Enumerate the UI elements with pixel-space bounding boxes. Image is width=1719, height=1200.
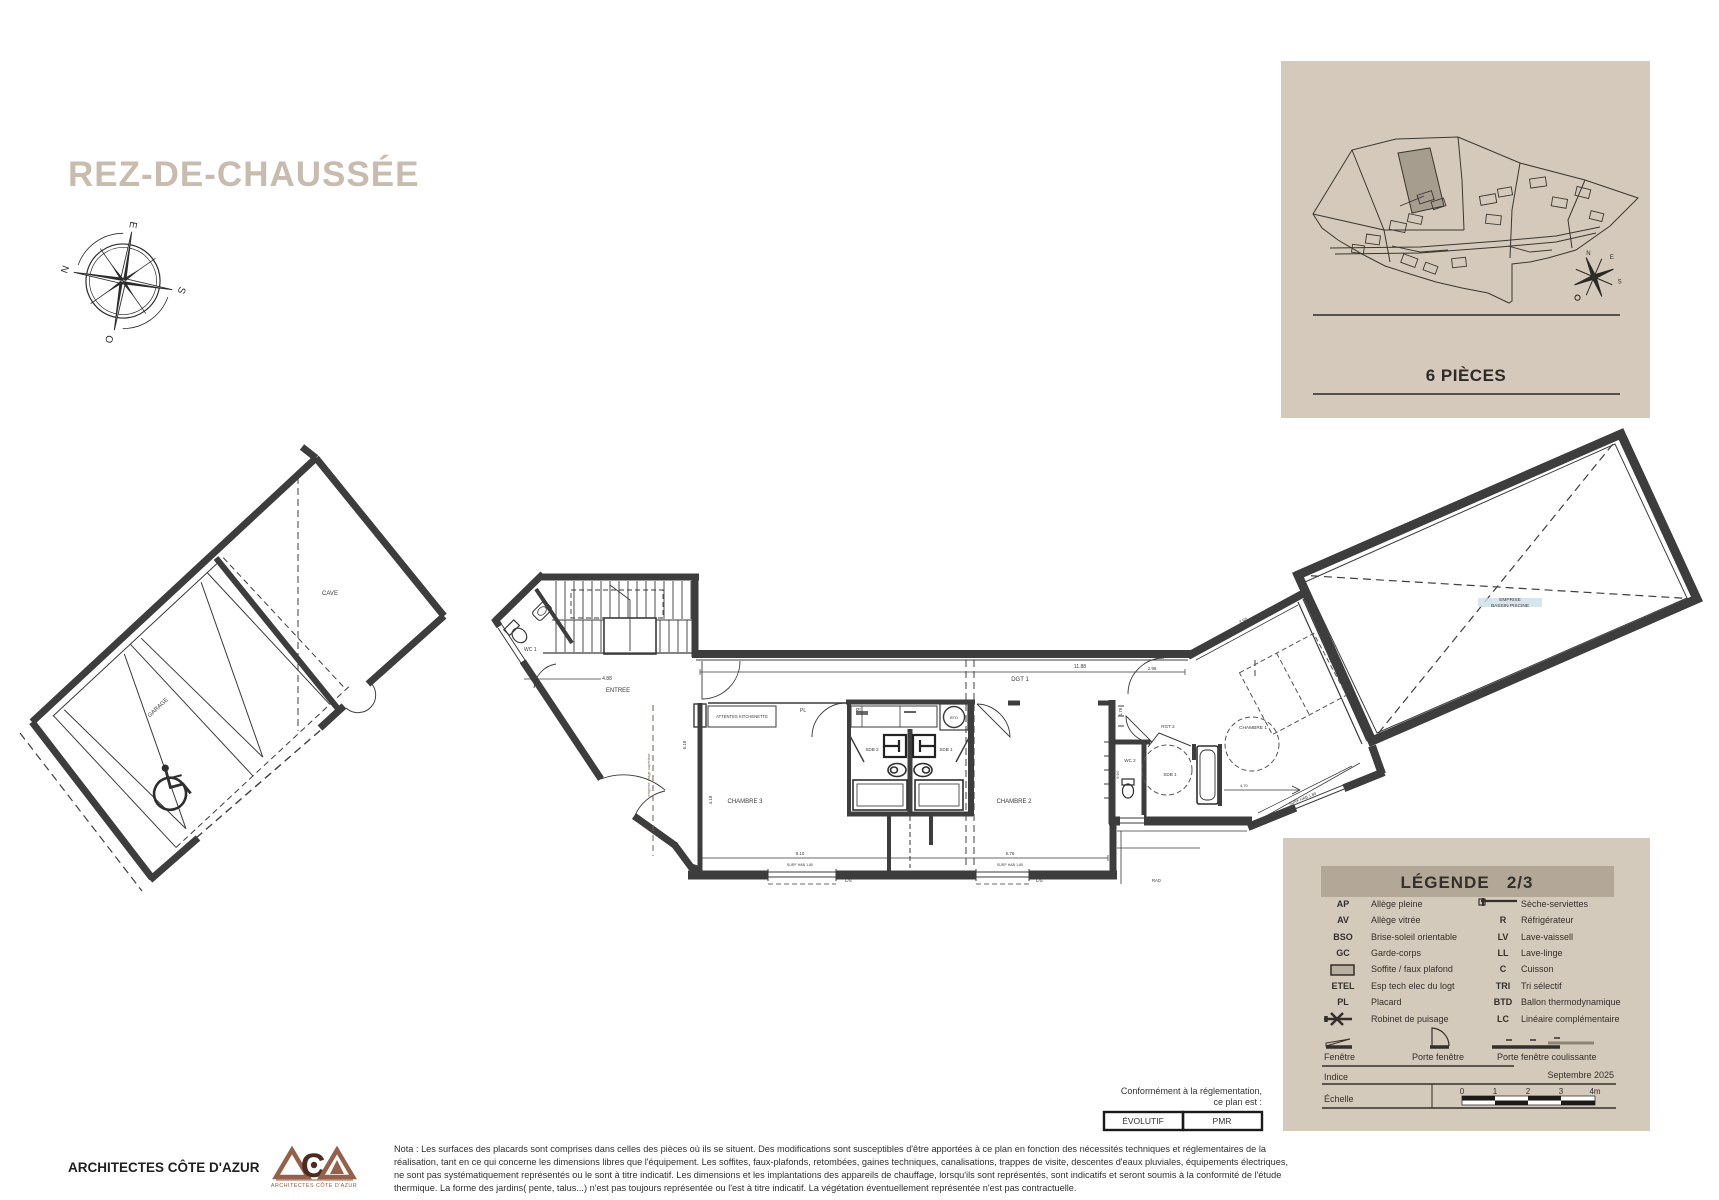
svg-text:CHAMBRE 3: CHAMBRE 3 (727, 799, 763, 805)
svg-text:LV: LV (1498, 932, 1509, 942)
svg-text:ÉVOLUTIF: ÉVOLUTIF (1122, 1116, 1164, 1126)
svg-text:4m: 4m (1589, 1087, 1600, 1096)
svg-text:PL: PL (800, 708, 806, 714)
svg-text:ARCHITECTES CÔTE D'AZUR: ARCHITECTES CÔTE D'AZUR (271, 1182, 357, 1189)
svg-text:réalisation, tant en ce qui co: réalisation, tant en ce qui concerne les… (394, 1157, 1288, 1167)
svg-text:ENTREE: ENTREE (606, 688, 630, 694)
svg-text:LL: LL (1498, 948, 1509, 958)
svg-text:ETEL: ETEL (1331, 981, 1355, 991)
svg-text:6.76: 6.76 (1006, 851, 1015, 856)
svg-text:PL: PL (856, 708, 862, 714)
svg-text:BTD: BTD (1494, 997, 1513, 1007)
svg-text:ne sont pas systématiquement r: ne sont pas systématiquement représentés… (394, 1170, 1281, 1180)
svg-text:GC: GC (1336, 948, 1350, 958)
svg-text:S: S (1618, 280, 1622, 286)
svg-text:REZ-DE-CHAUSSÉE: REZ-DE-CHAUSSÉE (68, 154, 419, 194)
svg-text:L/S: L/S (1036, 878, 1043, 883)
svg-text:Placard: Placard (1371, 997, 1402, 1007)
svg-text:AP: AP (1337, 899, 1350, 909)
svg-text:0.94: 0.94 (1116, 771, 1120, 778)
svg-text:Septembre 2025: Septembre 2025 (1547, 1070, 1614, 1080)
svg-text:0: 0 (1460, 1087, 1465, 1096)
svg-text:Brise-soleil orientable: Brise-soleil orientable (1371, 932, 1457, 942)
svg-text:Conformément à la réglementati: Conformément à la réglementation, (1121, 1086, 1262, 1096)
svg-text:emprise étage supérieur: emprise étage supérieur (646, 753, 651, 797)
svg-text:3: 3 (1559, 1087, 1564, 1096)
svg-text:R: R (1500, 915, 1507, 925)
svg-text:6.18: 6.18 (682, 740, 687, 749)
svg-text:L/S: L/S (845, 878, 852, 883)
svg-text:BSO: BSO (1333, 932, 1353, 942)
svg-text:4.18: 4.18 (708, 795, 713, 804)
svg-text:6 PIÈCES: 6 PIÈCES (1426, 366, 1507, 385)
svg-text:SDB 1: SDB 1 (939, 747, 953, 752)
svg-text:ce plan est :: ce plan est : (1213, 1097, 1262, 1107)
svg-text:Allège vitrée: Allège vitrée (1371, 915, 1421, 925)
svg-text:2: 2 (1526, 1087, 1531, 1096)
svg-text:WC 2: WC 2 (1124, 758, 1136, 763)
svg-text:E: E (1610, 255, 1614, 261)
svg-text:2.96: 2.96 (1148, 666, 1157, 671)
svg-text:ARCHITECTES CÔTE D'AZUR: ARCHITECTES CÔTE D'AZUR (68, 1160, 260, 1175)
svg-text:AV: AV (1337, 915, 1349, 925)
svg-text:BTD: BTD (950, 715, 958, 720)
svg-text:1: 1 (1493, 1087, 1498, 1096)
svg-text:Ballon thermodynamique: Ballon thermodynamique (1521, 997, 1621, 1007)
svg-text:4.76: 4.76 (1118, 707, 1123, 716)
svg-text:RAD: RAD (1152, 878, 1161, 883)
svg-text:RGT 2: RGT 2 (1161, 724, 1175, 729)
svg-text:ATTENTES KITCHENETTE: ATTENTES KITCHENETTE (716, 714, 768, 719)
svg-text:Lave-linge: Lave-linge (1521, 948, 1563, 958)
svg-text:Esp tech elec du logt: Esp tech elec du logt (1371, 981, 1455, 991)
svg-text:Soffite / faux plafond: Soffite / faux plafond (1371, 964, 1453, 974)
svg-text:EMPRISE: EMPRISE (1499, 597, 1521, 603)
svg-text:4.70: 4.70 (1240, 783, 1249, 788)
svg-text:Porte fenêtre: Porte fenêtre (1412, 1052, 1464, 1062)
svg-text:CHAMBRE 2: CHAMBRE 2 (996, 799, 1032, 805)
svg-text:WC 1: WC 1 (524, 647, 537, 653)
svg-text:BASSIN PISCINE: BASSIN PISCINE (1491, 603, 1529, 609)
svg-text:11.88: 11.88 (1074, 664, 1086, 670)
svg-text:DGT 1: DGT 1 (1011, 677, 1029, 683)
svg-text:Allège pleine: Allège pleine (1371, 899, 1423, 909)
svg-text:Robinet de puisage: Robinet de puisage (1371, 1014, 1449, 1024)
svg-text:CAVE: CAVE (322, 591, 338, 597)
svg-text:C: C (1500, 964, 1507, 974)
svg-text:Linéaire complémentaire: Linéaire complémentaire (1521, 1014, 1620, 1024)
svg-text:Indice: Indice (1324, 1072, 1348, 1082)
svg-text:Porte fenêtre coulissante: Porte fenêtre coulissante (1497, 1052, 1597, 1062)
svg-text:SURF HAB 1.80: SURF HAB 1.80 (787, 863, 813, 867)
svg-text:Cuisson: Cuisson (1521, 964, 1554, 974)
svg-text:PL: PL (1337, 997, 1349, 1007)
svg-text:TRI: TRI (1496, 981, 1511, 991)
svg-text:Échelle: Échelle (1324, 1094, 1354, 1104)
svg-text:LÉGENDE 2/3: LÉGENDE 2/3 (1401, 873, 1534, 892)
svg-text:SURF HAB 1.80: SURF HAB 1.80 (997, 863, 1023, 867)
svg-text:Garde-corps: Garde-corps (1371, 948, 1422, 958)
svg-text:N: N (1586, 251, 1590, 257)
svg-text:SDB 2: SDB 2 (865, 747, 879, 752)
svg-text:PMR: PMR (1213, 1116, 1232, 1126)
svg-text:Nota : Les surfaces des placar: Nota : Les surfaces des placards sont co… (394, 1144, 1267, 1154)
svg-text:8.10: 8.10 (796, 851, 805, 856)
svg-text:4.88: 4.88 (602, 676, 612, 682)
svg-text:SDB 1: SDB 1 (1163, 772, 1177, 777)
svg-text:Réfrigérateur: Réfrigérateur (1521, 915, 1574, 925)
svg-text:LC: LC (1497, 1014, 1509, 1024)
svg-text:CHAMBRE 1: CHAMBRE 1 (1239, 725, 1267, 731)
svg-text:Tri sélectif: Tri sélectif (1521, 981, 1562, 991)
svg-text:Fenêtre: Fenêtre (1324, 1052, 1355, 1062)
svg-text:Lave-vaissell: Lave-vaissell (1521, 932, 1573, 942)
svg-text:thermique. La forme des jardin: thermique. La forme des jardins( pente, … (394, 1183, 1076, 1193)
svg-text:Sèche-serviettes: Sèche-serviettes (1521, 899, 1589, 909)
